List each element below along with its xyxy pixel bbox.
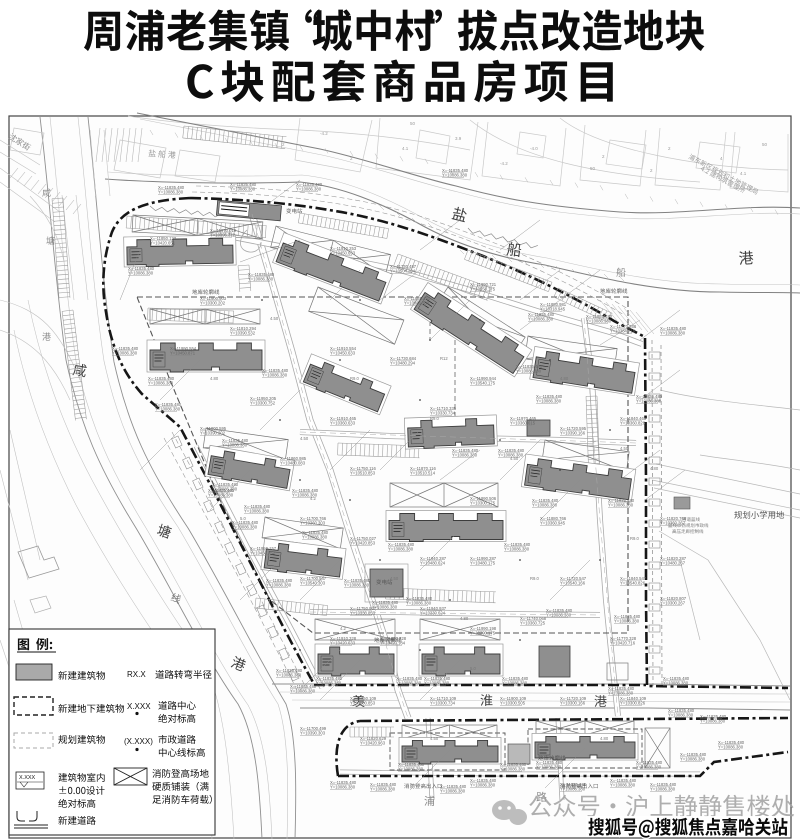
svg-text:Y=10300.267: Y=10300.267 — [660, 601, 686, 606]
svg-text:Y=10086.380: Y=10086.380 — [536, 399, 562, 404]
svg-text:Y=10300.202: Y=10300.202 — [200, 301, 226, 306]
svg-text:X.XXX: X.XXX — [127, 702, 151, 711]
svg-text:Y=10330.734: Y=10330.734 — [430, 411, 456, 416]
svg-text:4.50: 4.50 — [620, 446, 629, 451]
svg-text:4.80: 4.80 — [560, 376, 569, 381]
svg-text:Y=10420.633: Y=10420.633 — [330, 641, 356, 646]
svg-text:Y=10540.166: Y=10540.166 — [560, 581, 586, 586]
svg-text:Y=10086.380: Y=10086.380 — [212, 487, 238, 492]
svg-text:Y=10086.380: Y=10086.380 — [404, 301, 430, 306]
svg-text:Y=10390.202: Y=10390.202 — [200, 431, 226, 436]
svg-text:RX.X: RX.X — [127, 670, 146, 679]
svg-text:4.2: 4.2 — [340, 626, 346, 631]
svg-text:Y=10086.380: Y=10086.380 — [128, 271, 154, 276]
svg-text:Y=10086.380: Y=10086.380 — [614, 619, 640, 624]
svg-text:Y=10086.380: Y=10086.380 — [266, 583, 292, 588]
svg-text:Y=10420.184: Y=10420.184 — [380, 641, 406, 646]
svg-text:Y=10086.380: Y=10086.380 — [370, 787, 396, 792]
svg-text:Y=10086.380: Y=10086.380 — [660, 331, 686, 336]
svg-text:Y=10086.380: Y=10086.380 — [388, 547, 414, 552]
svg-text:Y=10510.514: Y=10510.514 — [410, 471, 436, 476]
svg-text:Y=10086.380: Y=10086.380 — [536, 765, 562, 770]
svg-text:Y=10330.853: Y=10330.853 — [350, 611, 376, 616]
svg-text:Y=10384.716: Y=10384.716 — [610, 329, 636, 334]
svg-text:Y=10390.532: Y=10390.532 — [230, 331, 256, 336]
svg-text:-4.2: -4.2 — [500, 161, 508, 166]
svg-text:Y=10086.380: Y=10086.380 — [532, 503, 558, 508]
svg-text:R9.0: R9.0 — [630, 536, 640, 541]
svg-text:Y=10086.380: Y=10086.380 — [608, 503, 634, 508]
svg-text:Y=10086.380: Y=10086.380 — [296, 187, 322, 192]
svg-text:Y=10086.380: Y=10086.380 — [344, 583, 370, 588]
svg-text:4.50: 4.50 — [300, 436, 309, 441]
svg-text:4.80: 4.80 — [210, 376, 219, 381]
svg-text:Y=10510.853: Y=10510.853 — [350, 471, 376, 476]
svg-text:Y=10086.380: Y=10086.380 — [112, 351, 138, 356]
svg-text:Y=10300.734: Y=10300.734 — [430, 701, 456, 706]
svg-text:Y=10540.175: Y=10540.175 — [470, 381, 496, 386]
svg-text:Y=10390.303: Y=10390.303 — [300, 731, 326, 736]
svg-text:Y=10420.651: Y=10420.651 — [150, 241, 176, 246]
svg-text:Y=10086.380: Y=10086.380 — [158, 190, 184, 195]
svg-text:Y=10360.303: Y=10360.303 — [300, 521, 326, 526]
svg-text:Y=10086.380: Y=10086.380 — [502, 681, 528, 686]
svg-text:Y=10480.175: Y=10480.175 — [470, 561, 496, 566]
svg-text:Y=10086.380: Y=10086.380 — [302, 535, 328, 540]
svg-text:Y=10086.380: Y=10086.380 — [452, 453, 478, 458]
svg-text:Y=10086.380: Y=10086.380 — [230, 187, 256, 192]
svg-text:Y=10450.633: Y=10450.633 — [330, 351, 356, 356]
svg-text:Y=10360.725: Y=10360.725 — [520, 621, 546, 626]
svg-text:R9.0: R9.0 — [350, 376, 360, 381]
svg-text:Y=10480.267: Y=10480.267 — [660, 561, 686, 566]
svg-text:Y=10086.380: Y=10086.380 — [636, 765, 662, 770]
svg-text:Y=10086.380: Y=10086.380 — [396, 681, 422, 686]
svg-text:Y=10086.380: Y=10086.380 — [244, 509, 270, 514]
svg-text:-4.0: -4.0 — [530, 146, 538, 151]
svg-text:R9.0: R9.0 — [530, 576, 540, 581]
svg-text:Y=10086.380: Y=10086.380 — [398, 767, 424, 772]
svg-text:Y=10360.267: Y=10360.267 — [660, 521, 686, 526]
svg-text:-4.2: -4.2 — [320, 131, 328, 136]
svg-text:Y=10086.380: Y=10086.380 — [262, 373, 288, 378]
svg-text:Y=10086.380: Y=10086.380 — [610, 783, 636, 788]
svg-text:Y=10480.083: Y=10480.083 — [280, 461, 306, 466]
svg-text:50: 50 — [410, 121, 416, 126]
svg-text:Y=10300.752: Y=10300.752 — [250, 401, 276, 406]
svg-text:Y=10360.615: Y=10360.615 — [510, 421, 536, 426]
svg-text:4.80: 4.80 — [600, 736, 609, 741]
svg-text:Y=10086.380: Y=10086.380 — [718, 745, 744, 750]
svg-text:Y=10086.380: Y=10086.380 — [222, 443, 248, 448]
svg-text:Y=10390.166: Y=10390.166 — [560, 431, 586, 436]
svg-text:5.0: 5.0 — [240, 516, 246, 521]
svg-text:3.9: 3.9 — [455, 136, 462, 141]
svg-text:Y=10086.380: Y=10086.380 — [680, 757, 706, 762]
svg-text:Y=10086.380: Y=10086.380 — [636, 399, 662, 404]
svg-text:Y=10086.380: Y=10086.380 — [516, 369, 542, 374]
svg-text:4.80: 4.80 — [650, 466, 659, 471]
svg-text:Y=10086.380: Y=10086.380 — [650, 787, 676, 792]
svg-text:50: 50 — [590, 166, 596, 171]
svg-text:Y=10540.826: Y=10540.826 — [620, 581, 646, 586]
svg-text:Y=10300.166: Y=10300.166 — [560, 701, 586, 706]
svg-text:Y=10086.380: Y=10086.380 — [148, 381, 174, 386]
svg-text:Y=10300.505: Y=10300.505 — [500, 701, 526, 706]
svg-text:Y=10086.380: Y=10086.380 — [500, 767, 526, 772]
svg-text:Y=10450.633: Y=10450.633 — [330, 251, 356, 256]
svg-text:Y=10086.380: Y=10086.380 — [442, 173, 468, 178]
svg-text:Y=10086.380: Y=10086.380 — [668, 713, 694, 718]
svg-text:Y=10086.380: Y=10086.380 — [700, 719, 726, 724]
svg-text:4.1: 4.1 — [740, 171, 747, 176]
svg-text:Y=10390.175: Y=10390.175 — [470, 631, 496, 636]
svg-text:Y=10450.752: Y=10450.752 — [250, 551, 276, 556]
svg-text:Y=10300.853: Y=10300.853 — [350, 701, 376, 706]
svg-text:Y=10086.380: Y=10086.380 — [608, 691, 634, 696]
svg-text:Y=10300.175: Y=10300.175 — [470, 501, 496, 506]
svg-text:Y=10086.380: Y=10086.380 — [470, 783, 496, 788]
svg-text:5.0: 5.0 — [470, 666, 476, 671]
svg-text:Y=10086.380: Y=10086.380 — [663, 681, 689, 686]
svg-text:4.1: 4.1 — [402, 146, 409, 151]
svg-text:Y=10086.380: Y=10086.380 — [504, 547, 530, 552]
svg-text:Y=10420.963: Y=10420.963 — [360, 741, 386, 746]
svg-text:Y=10300.826: Y=10300.826 — [620, 701, 646, 706]
svg-text:Y=10396.312: Y=10396.312 — [210, 233, 236, 238]
svg-text:Y=10360.826: Y=10360.826 — [620, 421, 646, 426]
svg-text:4.50: 4.50 — [270, 316, 279, 321]
svg-text:Y=10318.945: Y=10318.945 — [540, 307, 566, 312]
svg-text:4.80: 4.80 — [460, 616, 469, 621]
svg-text:Y=10360.945: Y=10360.945 — [540, 521, 566, 526]
svg-text:X.XXX: X.XXX — [19, 775, 36, 781]
svg-text:Y=10450.871: Y=10450.871 — [170, 351, 196, 356]
svg-text:Y=10086.380: Y=10086.380 — [208, 493, 234, 498]
svg-text:Y=10086.380: Y=10086.380 — [290, 689, 316, 694]
svg-text:Y=10540.303: Y=10540.303 — [300, 581, 326, 586]
svg-text:Y=10086.380: Y=10086.380 — [316, 681, 342, 686]
svg-text:50: 50 — [762, 142, 768, 147]
svg-text:Y=10480.294: Y=10480.294 — [390, 361, 416, 366]
svg-text:Y=10504.294: Y=10504.294 — [390, 269, 416, 274]
svg-text:4.50: 4.50 — [430, 736, 439, 741]
svg-text:4.50: 4.50 — [390, 576, 399, 581]
svg-text:Y=10480.624: Y=10480.624 — [420, 561, 446, 566]
svg-text:Y=10420.853: Y=10420.853 — [350, 541, 376, 546]
svg-text:R9.0: R9.0 — [430, 416, 440, 421]
svg-text:R12: R12 — [440, 356, 448, 361]
svg-text:Y=10086.380: Y=10086.380 — [330, 785, 356, 790]
svg-text:Y=10360.633: Y=10360.633 — [330, 421, 356, 426]
svg-text:Y=10086.380: Y=10086.380 — [155, 407, 181, 412]
svg-text:Y=10558.175: Y=10558.175 — [470, 287, 496, 292]
svg-text:4.2: 4.2 — [310, 496, 316, 501]
svg-text:Y=10086.380: Y=10086.380 — [232, 525, 258, 530]
svg-text:Y=10086.380: Y=10086.380 — [440, 789, 466, 794]
svg-text:Y=10086.380: Y=10086.380 — [546, 613, 572, 618]
svg-text:(X.XXX): (X.XXX) — [124, 737, 153, 746]
svg-text:4.50: 4.50 — [510, 456, 519, 461]
svg-text:Y=10420.716: Y=10420.716 — [610, 641, 636, 646]
svg-text:Y=10086.380: Y=10086.380 — [406, 601, 432, 606]
